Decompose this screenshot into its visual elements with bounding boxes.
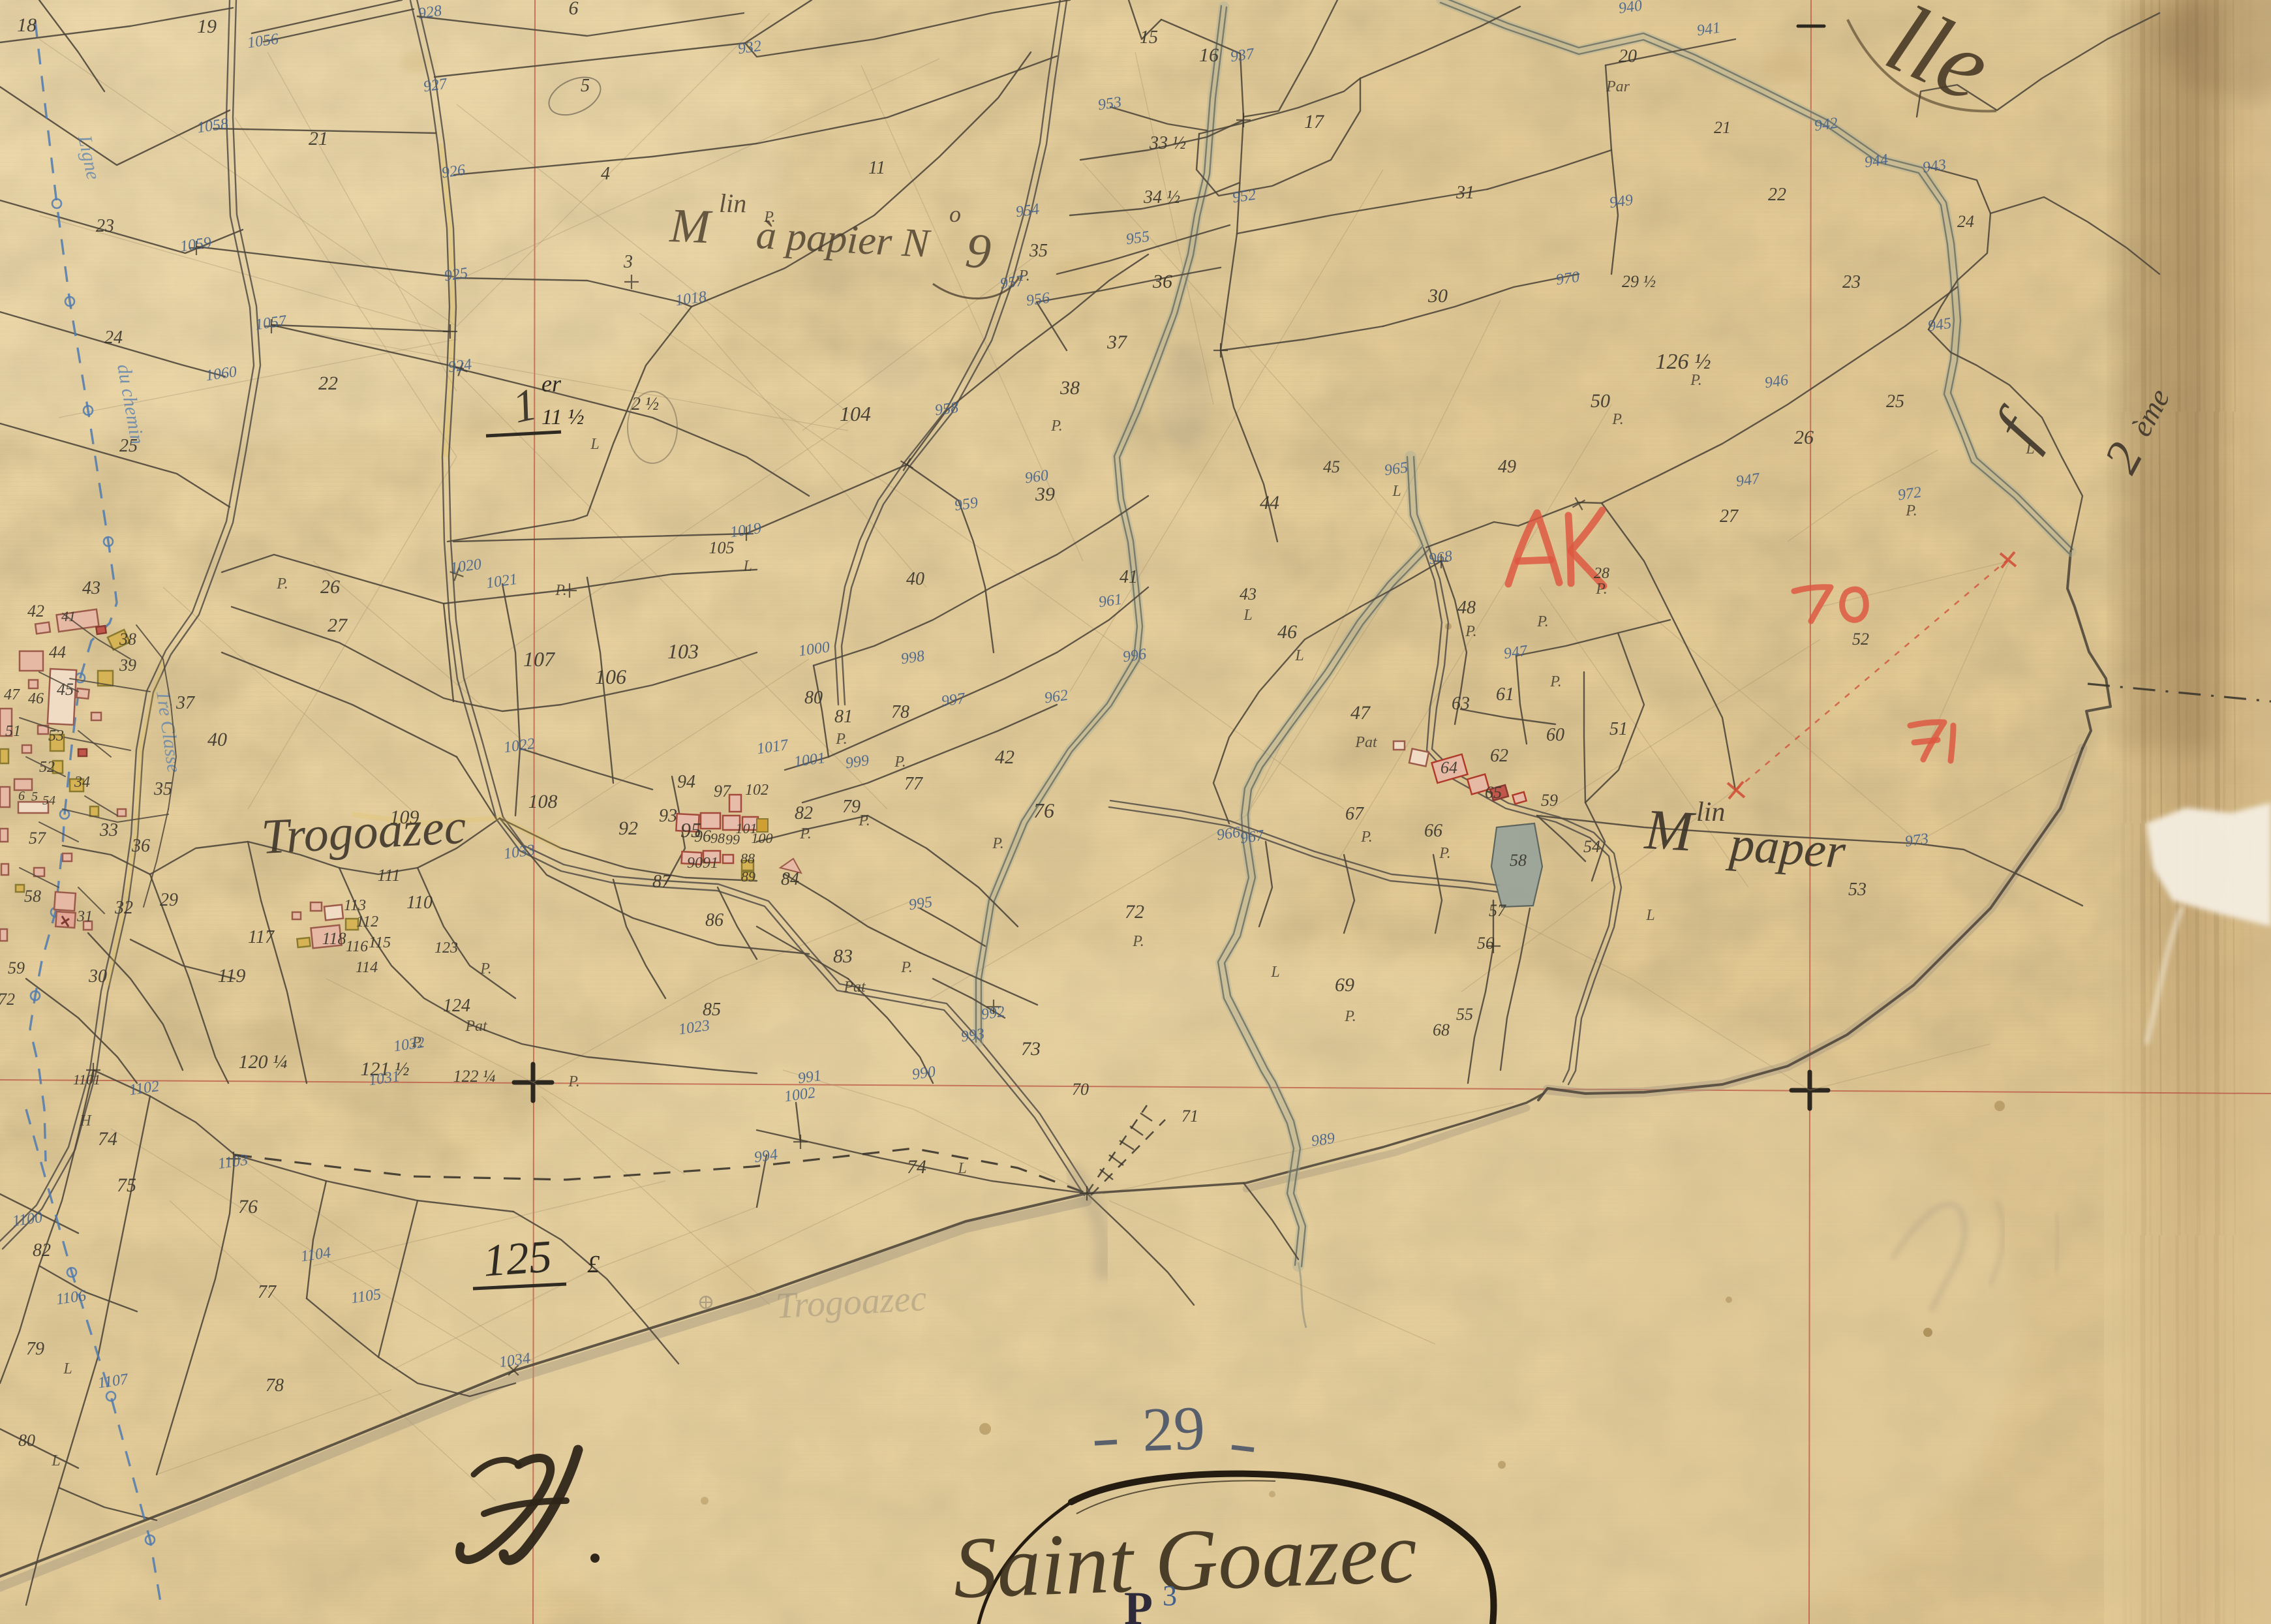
svg-text:932: 932 [737,38,762,58]
svg-text:114: 114 [356,959,378,976]
svg-text:P.: P. [799,825,812,842]
svg-text:34: 34 [74,774,90,791]
svg-text:P.: P. [1439,845,1451,862]
svg-text:P.: P. [992,835,1004,852]
svg-text:P.: P. [894,754,906,771]
svg-text:110: 110 [406,893,433,913]
svg-text:lin: lin [719,189,746,218]
svg-text:67: 67 [1345,804,1364,824]
svg-text:64: 64 [1440,758,1457,777]
svg-text:P: P [1124,1582,1153,1624]
svg-text:54: 54 [1583,837,1600,856]
svg-text:L: L [1243,607,1252,624]
svg-text:26: 26 [320,576,340,598]
svg-text:55: 55 [1456,1005,1473,1024]
svg-text:63: 63 [1452,694,1470,714]
svg-text:44: 44 [1260,492,1279,513]
svg-text:51: 51 [1609,719,1628,739]
svg-text:P.: P. [1050,418,1063,435]
svg-text:L: L [63,1360,72,1377]
svg-text:5: 5 [581,76,590,96]
svg-text:50: 50 [1591,390,1610,412]
svg-text:116: 116 [346,938,368,955]
svg-text:P.: P. [1690,372,1702,389]
svg-text:999: 999 [844,752,870,773]
svg-text:113: 113 [344,897,366,914]
svg-text:86: 86 [705,910,724,930]
svg-text:80: 80 [18,1431,35,1450]
svg-text:6: 6 [18,789,25,803]
svg-text:11 ½: 11 ½ [541,405,584,429]
svg-text:Trogoazec: Trogoazec [774,1278,927,1326]
svg-text:108: 108 [528,791,558,812]
svg-text:43: 43 [1240,585,1257,604]
svg-text:994: 994 [753,1146,778,1167]
svg-text:L: L [1392,483,1401,500]
svg-text:25: 25 [119,436,138,456]
svg-text:1101: 1101 [73,1071,100,1088]
svg-text:42: 42 [27,602,44,620]
svg-text:94: 94 [677,772,695,792]
svg-text:59: 59 [8,958,25,977]
svg-text:22: 22 [1768,185,1786,205]
svg-text:73: 73 [1021,1038,1041,1060]
svg-text:103: 103 [667,639,699,663]
svg-text:925: 925 [443,265,468,285]
svg-text:120 ¼: 120 ¼ [239,1051,288,1073]
svg-text:29 ½: 29 ½ [1622,272,1656,291]
svg-text:5: 5 [31,789,38,804]
svg-text:944: 944 [1863,151,1889,172]
svg-text:946: 946 [1763,372,1789,392]
svg-text:79: 79 [842,797,861,817]
svg-text:Saint Goazec: Saint Goazec [952,1504,1419,1617]
svg-text:30: 30 [1427,285,1448,307]
svg-text:2 ½: 2 ½ [632,394,659,414]
svg-text:P.: P. [900,959,913,976]
svg-text:38: 38 [119,630,136,649]
svg-text:P.: P. [1536,613,1549,630]
svg-text:P.: P. [1360,829,1373,846]
svg-text:74: 74 [907,1156,926,1178]
svg-text:lin: lin [1696,797,1725,827]
svg-text:43: 43 [82,578,100,598]
svg-text:P.: P. [1611,411,1624,428]
svg-text:34 ½: 34 ½ [1143,187,1180,207]
svg-text:33: 33 [99,820,118,840]
svg-text:45: 45 [1323,457,1340,476]
svg-text:33 ½: 33 ½ [1149,133,1186,153]
svg-text:958: 958 [934,399,959,420]
svg-text:Par: Par [1606,78,1630,95]
svg-text:968: 968 [1427,548,1453,568]
svg-text:21: 21 [1714,118,1731,137]
svg-text:924: 924 [447,356,472,376]
svg-text:59: 59 [1541,791,1558,810]
svg-text:47: 47 [1350,702,1371,724]
svg-text:68: 68 [1433,1020,1450,1039]
svg-text:37: 37 [175,693,195,713]
svg-text:21: 21 [309,128,328,149]
svg-text:4: 4 [601,164,610,184]
svg-text:Pat: Pat [465,1018,488,1035]
svg-text:104: 104 [840,402,871,425]
svg-text:48: 48 [1457,598,1476,618]
svg-text:58: 58 [24,887,41,906]
svg-text:927: 927 [422,76,448,96]
svg-text:52: 52 [1852,630,1869,649]
svg-text:941: 941 [1696,20,1721,40]
svg-text:993: 993 [960,1026,985,1046]
svg-text:31: 31 [1456,183,1474,203]
svg-text:39: 39 [1035,483,1055,505]
svg-text:35: 35 [1029,241,1048,261]
svg-text:Pat: Pat [1354,734,1378,751]
svg-text:998: 998 [900,648,925,668]
svg-text:955: 955 [1125,228,1150,249]
svg-text:96: 96 [694,827,711,846]
svg-text:97: 97 [714,782,731,801]
svg-text:L: L [957,1160,966,1177]
svg-text:91: 91 [703,855,718,872]
svg-text:78: 78 [891,702,909,722]
svg-text:P.: P. [763,209,776,226]
svg-text:954: 954 [1014,201,1040,221]
svg-text:29: 29 [1141,1392,1206,1464]
svg-text:40: 40 [906,569,924,589]
svg-text:P.: P. [276,575,288,592]
svg-text:947: 947 [1735,470,1761,491]
svg-text:122 ¼: 122 ¼ [453,1067,496,1086]
svg-text:L: L [2025,440,2034,457]
svg-text:118: 118 [322,929,346,948]
svg-text:105: 105 [709,538,735,557]
svg-text:970: 970 [1555,269,1580,289]
svg-text:967: 967 [1239,827,1265,848]
svg-text:995: 995 [907,894,933,914]
svg-text:P.: P. [480,960,492,977]
svg-text:27: 27 [328,615,348,636]
svg-text:972: 972 [1897,484,1922,504]
svg-text:16: 16 [1199,44,1219,66]
svg-text:27: 27 [1720,506,1739,527]
svg-text:46: 46 [1277,621,1297,643]
svg-text:942: 942 [1813,115,1838,135]
svg-text:965: 965 [1383,459,1409,480]
svg-text:P.: P. [1132,933,1144,950]
svg-text:P.: P. [858,812,870,829]
svg-text:L: L [1294,647,1303,664]
svg-text:47: 47 [4,686,20,703]
svg-text:36: 36 [131,836,150,856]
svg-text:H: H [79,1112,92,1129]
svg-text:P.: P. [835,731,847,748]
svg-text:17: 17 [1304,111,1325,132]
svg-text:93: 93 [659,806,677,826]
svg-text:953: 953 [1097,94,1122,114]
svg-text:23: 23 [1842,272,1861,292]
svg-text:69: 69 [1335,974,1354,996]
svg-text:L: L [590,436,599,453]
svg-text:51: 51 [5,723,21,740]
svg-text:85: 85 [703,1000,721,1020]
svg-text:39: 39 [119,656,136,675]
svg-text:P.: P. [1344,1008,1356,1025]
svg-text:76: 76 [1033,799,1054,822]
svg-text:76: 76 [238,1196,258,1218]
svg-text:M: M [668,199,714,254]
svg-text:960: 960 [1024,467,1049,487]
svg-text:24: 24 [1957,212,1974,231]
svg-text:P.: P. [1595,581,1608,598]
svg-text:996: 996 [1121,646,1147,666]
svg-text:966: 966 [1215,824,1241,844]
svg-text:P.: P. [568,1073,580,1090]
svg-text:119: 119 [218,965,246,987]
svg-text:£: £ [587,1251,600,1278]
svg-text:38: 38 [1059,377,1080,399]
svg-text:117: 117 [248,927,275,947]
svg-text:32: 32 [114,898,133,918]
svg-text:71: 71 [1181,1107,1198,1126]
svg-text:102: 102 [745,782,769,799]
svg-text:3: 3 [1163,1580,1177,1612]
svg-text:61: 61 [1496,684,1514,705]
svg-text:30: 30 [88,966,107,987]
svg-text:à papier N: à papier N [755,213,932,266]
svg-text:962: 962 [1043,687,1069,707]
svg-text:937: 937 [1229,46,1255,66]
svg-text:44: 44 [49,643,66,662]
svg-text:42: 42 [995,746,1014,768]
svg-text:75: 75 [117,1174,136,1196]
svg-text:106: 106 [595,665,626,688]
svg-text:L: L [51,1452,60,1469]
svg-text:989: 989 [1310,1130,1335,1150]
svg-text:6: 6 [569,0,579,19]
svg-text:P.: P. [1549,673,1562,690]
svg-text:81: 81 [834,707,853,727]
svg-text:L: L [742,558,752,575]
svg-text:paper: paper [1725,816,1848,880]
svg-text:36: 36 [1152,271,1172,292]
svg-text:88: 88 [740,850,755,866]
svg-text:57: 57 [1489,901,1506,920]
svg-text:29: 29 [160,890,178,910]
svg-text:949: 949 [1608,192,1634,212]
svg-text:15: 15 [1140,27,1158,48]
svg-text:P.: P. [1465,623,1477,640]
svg-text:112: 112 [356,913,378,930]
svg-text:79: 79 [26,1339,44,1359]
svg-text:928: 928 [417,3,442,23]
svg-text:P.: P. [555,582,567,599]
svg-text:126 ½: 126 ½ [1656,350,1711,374]
svg-text:956: 956 [1025,290,1050,310]
svg-text:M: M [1642,798,1698,864]
svg-text:125: 125 [481,1231,553,1286]
svg-text:84: 84 [781,869,799,889]
svg-text:109: 109 [390,806,419,828]
svg-text:72: 72 [1125,901,1144,923]
svg-text:46: 46 [28,690,44,707]
svg-text:66: 66 [1424,821,1442,841]
svg-text:24: 24 [104,328,123,348]
svg-text:124: 124 [443,996,470,1016]
svg-text:87: 87 [652,872,671,892]
svg-text:40: 40 [207,729,227,750]
svg-text:78: 78 [266,1375,284,1396]
svg-text:107: 107 [523,647,556,671]
svg-text:115: 115 [369,934,391,951]
svg-text:P.: P. [1905,502,1917,519]
svg-text:89: 89 [741,868,755,885]
svg-text:100: 100 [752,830,773,846]
svg-text:77: 77 [904,774,923,794]
svg-text:65: 65 [1485,783,1502,802]
svg-text:19: 19 [197,16,217,37]
svg-text:990: 990 [911,1064,936,1084]
svg-text:992: 992 [980,1004,1005,1024]
svg-text:70: 70 [1072,1080,1089,1099]
svg-text:22: 22 [318,373,338,394]
svg-text:25: 25 [1886,391,1904,412]
svg-text:82: 82 [795,803,813,823]
svg-text:49: 49 [1498,457,1516,477]
svg-text:74: 74 [98,1128,117,1150]
svg-text:945: 945 [1927,315,1952,335]
svg-text:991: 991 [797,1067,822,1088]
svg-text:926: 926 [440,162,466,182]
svg-text:92: 92 [618,818,638,839]
svg-text:83: 83 [833,945,853,967]
svg-text:123: 123 [434,940,458,957]
svg-text:997: 997 [940,690,966,711]
svg-text:959: 959 [953,495,979,515]
svg-text:11: 11 [868,158,885,178]
svg-text:961: 961 [1097,591,1123,611]
svg-text:53: 53 [1848,880,1867,900]
svg-text:18: 18 [17,14,37,36]
svg-text:57: 57 [29,829,46,848]
svg-text:60: 60 [1546,725,1564,745]
svg-text:37: 37 [1106,331,1128,353]
svg-text:58: 58 [1510,851,1527,870]
svg-text:943: 943 [1921,157,1947,177]
svg-text:o: o [949,201,961,227]
svg-text:80: 80 [804,688,823,708]
svg-text:72: 72 [0,990,15,1009]
svg-text:26: 26 [1794,427,1814,448]
svg-text:20: 20 [1619,46,1637,67]
svg-text:62: 62 [1490,746,1508,766]
svg-text:947: 947 [1502,643,1529,663]
svg-text:35: 35 [153,779,172,799]
svg-text:973: 973 [1904,831,1929,851]
svg-text:77: 77 [258,1282,277,1302]
svg-text:111: 111 [377,866,400,885]
svg-text:31: 31 [76,908,93,925]
svg-text:Trogoazec: Trogoazec [260,799,467,865]
svg-text:56: 56 [1477,934,1494,953]
svg-text:957: 957 [999,273,1025,293]
svg-text:L: L [1645,907,1654,924]
svg-text:er: er [541,371,562,397]
svg-text:98: 98 [710,830,725,846]
svg-text:L: L [1270,964,1279,981]
svg-text:3: 3 [623,252,633,272]
svg-text:952: 952 [1231,187,1257,207]
svg-text:Pat: Pat [843,979,866,996]
svg-text:90: 90 [687,855,703,872]
svg-text:54: 54 [42,793,55,808]
svg-text:23: 23 [96,216,114,236]
svg-text:82: 82 [33,1240,51,1261]
svg-text:41: 41 [1120,567,1138,587]
svg-text:28: 28 [1594,565,1609,582]
